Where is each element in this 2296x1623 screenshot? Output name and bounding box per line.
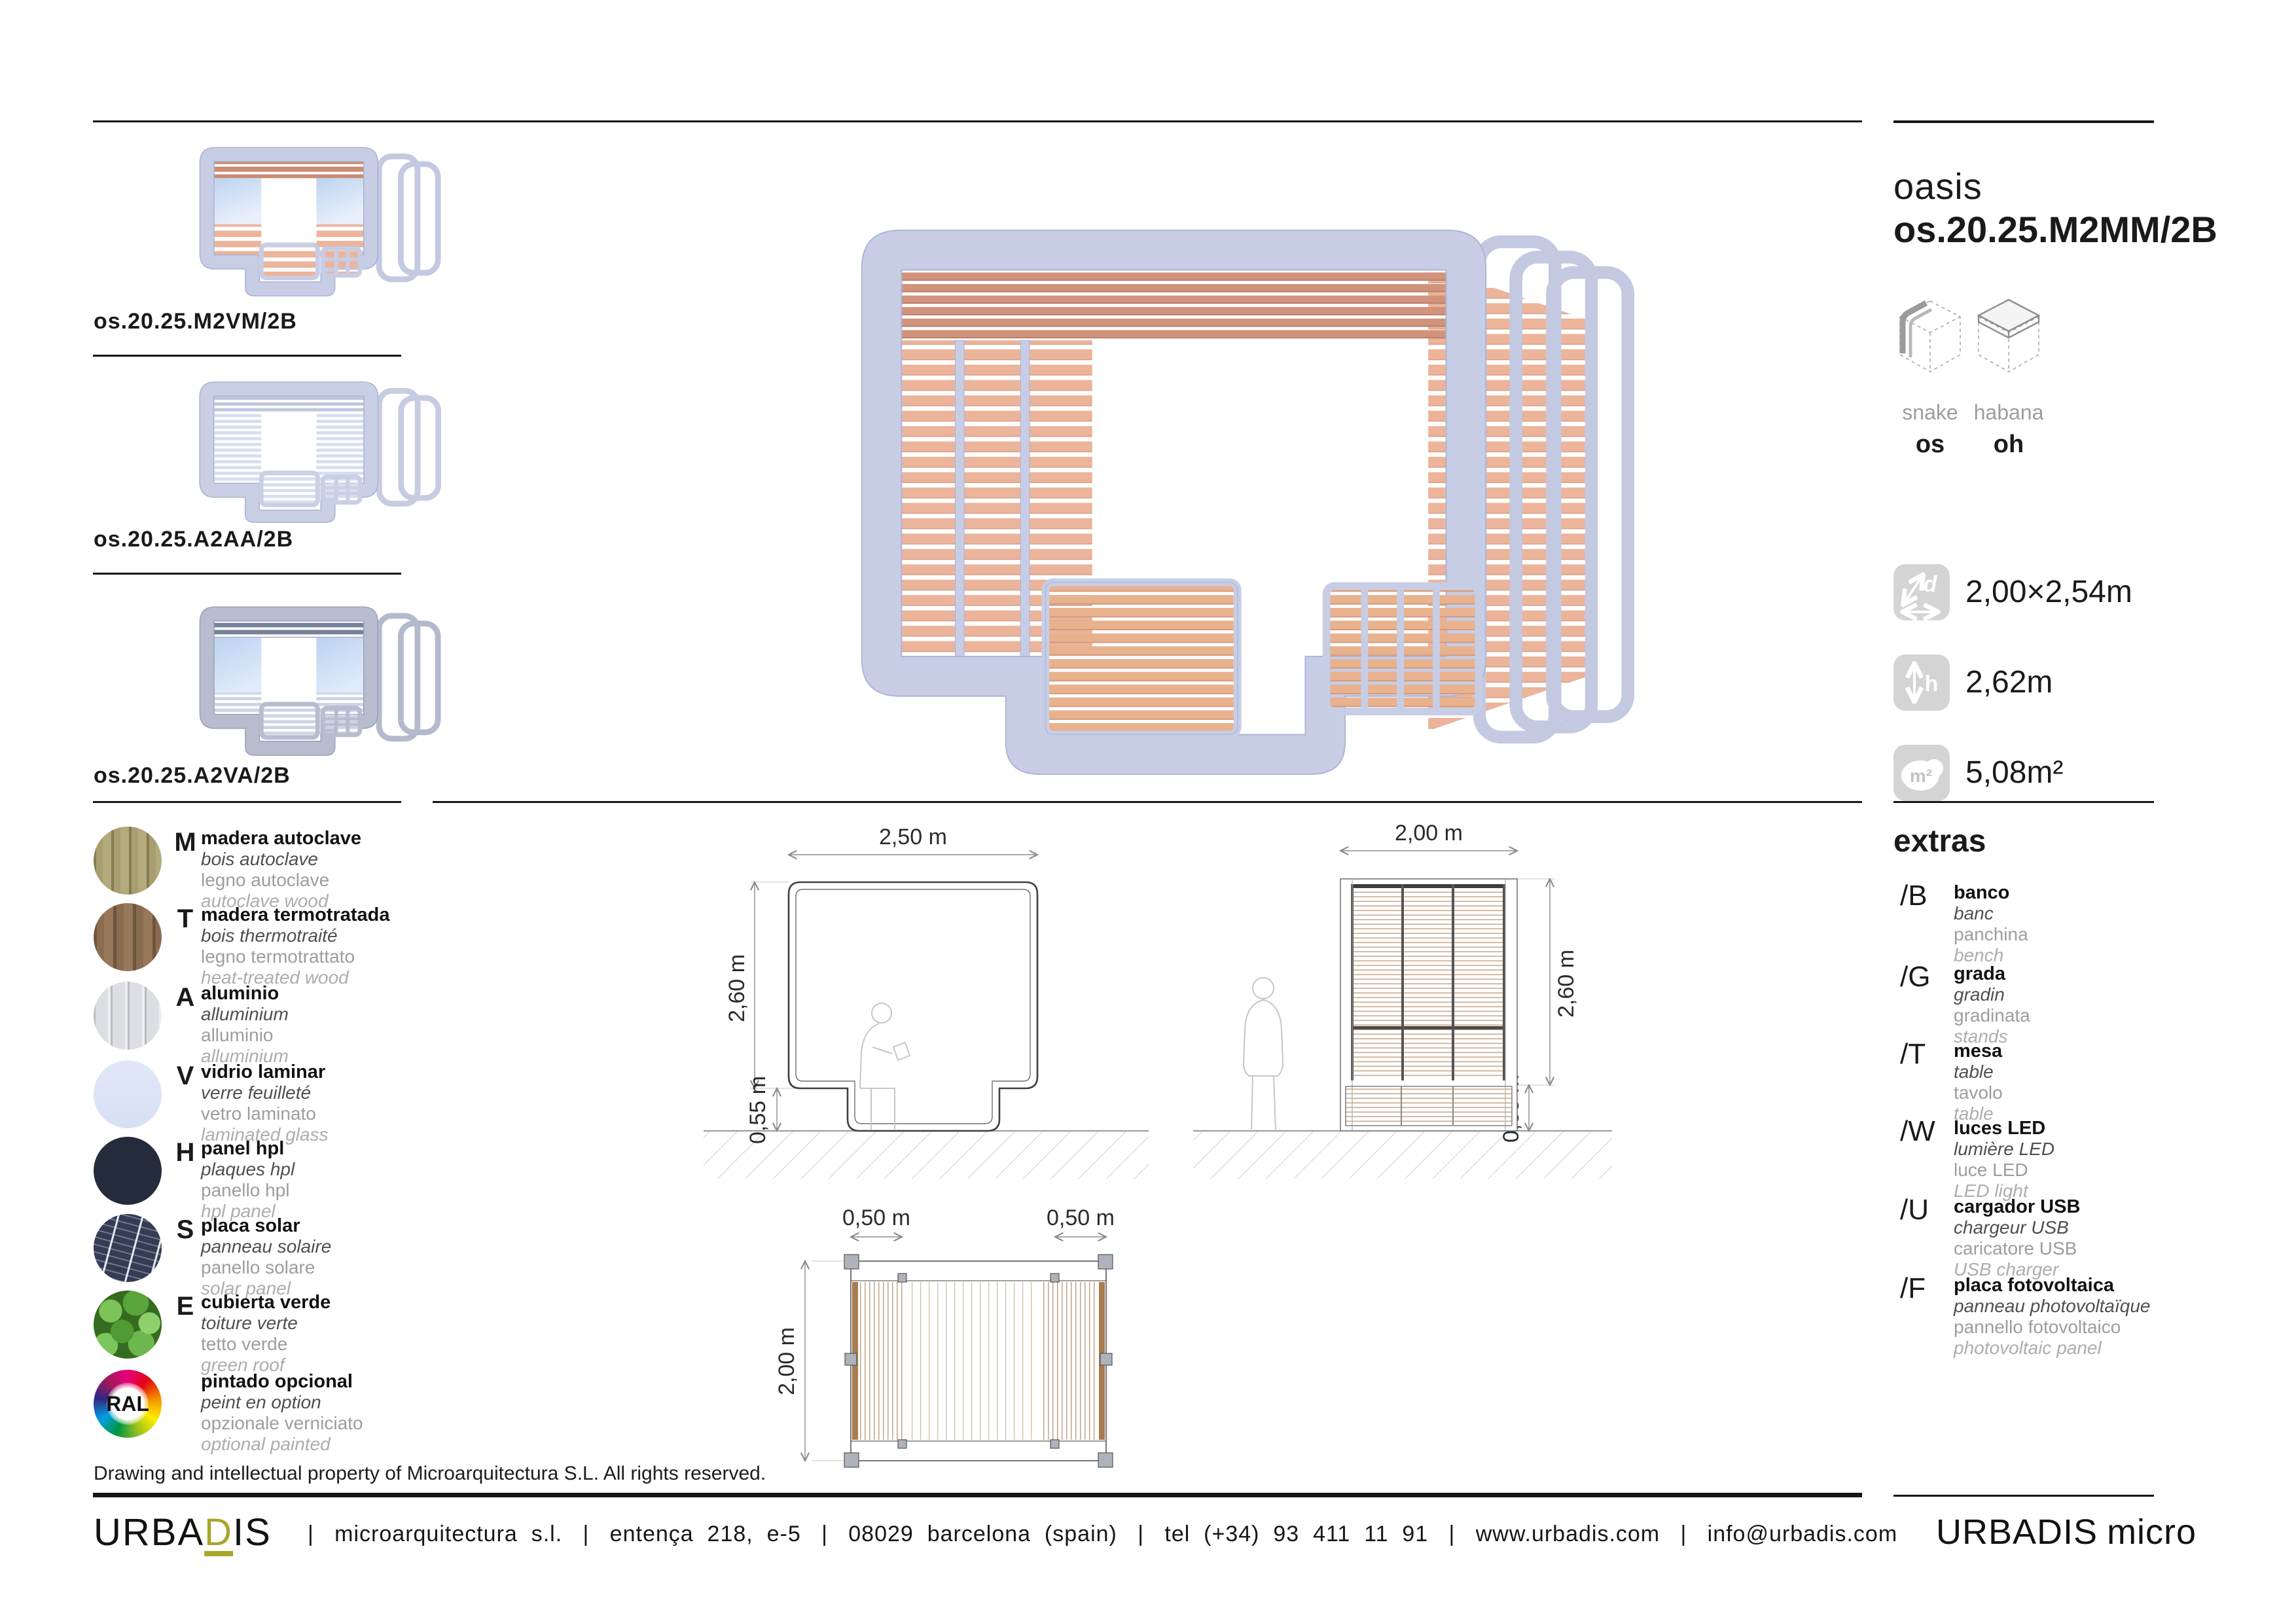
svg-text:m²: m² <box>1910 766 1932 786</box>
brand-accent: D <box>204 1511 233 1554</box>
extra-label-fr: gradin <box>1954 984 2030 1005</box>
extra-label-es: cargador USB <box>1954 1196 2080 1217</box>
footprint-icon: d <box>1893 564 1950 620</box>
material-label-es: vidrio laminar <box>201 1061 329 1082</box>
material-label-fr: plaques hpl <box>201 1159 295 1180</box>
bench-left <box>1045 582 1237 735</box>
spec-area: m² 5,08m² <box>1893 745 1950 801</box>
spec-footprint: d 2,00×2,54m <box>1893 564 1950 620</box>
laminated-glass-swatch <box>94 1060 162 1128</box>
material-letter: S <box>168 1215 203 1245</box>
footer-rule-main <box>93 1493 1862 1497</box>
material-label-es: cubierta verde <box>201 1292 331 1313</box>
model-code-oh: oh <box>1972 431 2045 459</box>
material-label-es: placa solar <box>201 1215 331 1236</box>
dim-front-bench: 0,55 m <box>745 1076 770 1144</box>
variant-3-label: os.20.25.A2VA/2B <box>94 763 291 789</box>
material-row: M madera autoclave bois autoclave legno … <box>94 827 683 899</box>
green-roof-swatch <box>94 1291 162 1359</box>
extra-label-es: banco <box>1954 882 2028 903</box>
extra-code: /B <box>1900 880 1928 912</box>
material-label-es: madera autoclave <box>201 828 361 849</box>
extra-label-es: placa fotovoltaica <box>1954 1275 2151 1296</box>
extra-label-it: tavolo <box>1954 1082 2003 1103</box>
top-rule-main <box>93 120 1862 122</box>
model-icons <box>1893 296 2051 393</box>
model-name-habana: habana <box>1972 401 2045 425</box>
extra-code: /U <box>1900 1194 1929 1226</box>
material-letter: A <box>168 983 203 1012</box>
mid-rule-main <box>433 801 1862 803</box>
model-name-snake: snake <box>1893 401 1967 425</box>
material-label-it: alluminio <box>201 1025 289 1046</box>
top-rule-right <box>1893 120 2154 123</box>
dim-side-height: 2,60 m <box>1554 950 1579 1018</box>
footer-rule-right <box>1893 1495 2154 1497</box>
material-label-fr: verre feuilleté <box>201 1082 329 1103</box>
material-label-it: legno termotrattato <box>201 946 390 967</box>
extra-code: /T <box>1900 1038 1926 1071</box>
aluminium-swatch <box>94 982 162 1050</box>
hero-product-render <box>766 134 1636 781</box>
roof-slats <box>901 270 1446 340</box>
variant-1-rule <box>93 355 401 357</box>
urbadis-logo: URBADIS <box>94 1510 272 1554</box>
solar-panel-swatch <box>94 1214 162 1282</box>
brand-post: IS <box>233 1511 272 1554</box>
material-row: A aluminio alluminium alluminio allumini… <box>94 982 683 1054</box>
urbadis-micro-logo: URBADISmicro <box>1936 1512 2197 1552</box>
material-label-es: madera termotratada <box>201 904 390 925</box>
extra-label-fr: panneau photovoltaïque <box>1954 1296 2151 1317</box>
material-label-it: tetto verde <box>201 1334 331 1355</box>
wood-autoclave-swatch <box>94 827 162 895</box>
material-label-en: optional painted <box>201 1434 363 1455</box>
mid-rule-right <box>1893 801 2154 803</box>
dim-plan-left: 0,50 m <box>842 1205 910 1230</box>
material-letter: T <box>168 904 203 934</box>
material-row: S placa solar panneau solaire panello so… <box>94 1214 683 1286</box>
material-label-es: pintado opcional <box>201 1371 363 1392</box>
material-letter: V <box>168 1061 203 1091</box>
svg-text:h: h <box>1925 671 1939 696</box>
material-row: T madera termotratada bois thermotraité … <box>94 903 683 975</box>
variant-2-label: os.20.25.A2AA/2B <box>94 527 293 552</box>
front-elevation-drawing: 2,50 m 2,60 m 0,55 m <box>691 817 1155 1181</box>
material-row: H panel hpl plaques hpl panello hpl hpl … <box>94 1137 683 1209</box>
material-letter: H <box>168 1138 203 1168</box>
material-label-it: panello hpl <box>201 1180 295 1201</box>
extra-label-fr: banc <box>1954 903 2028 924</box>
material-label-it: vetro laminato <box>201 1103 329 1124</box>
extra-label-fr: lumière LED <box>1954 1139 2054 1160</box>
material-label-es: panel hpl <box>201 1138 295 1159</box>
brand-post: IS <box>2063 1512 2098 1552</box>
brand-pre: URBA <box>1936 1512 2037 1552</box>
extra-label-es: mesa <box>1954 1041 2003 1061</box>
material-letter: M <box>168 828 203 857</box>
extra-label-it: gradinata <box>1954 1005 2030 1026</box>
extras-title: extras <box>1893 823 1986 859</box>
extra-label-it: panchina <box>1954 924 2028 945</box>
extra-label-fr: chargeur USB <box>1954 1217 2080 1238</box>
brand-suffix: micro <box>2107 1512 2197 1552</box>
spec-area-value: 5,08m² <box>1965 745 2063 801</box>
extra-label-es: grada <box>1954 963 2030 984</box>
material-label-fr: toiture verte <box>201 1313 331 1334</box>
brand-accent: D <box>2037 1512 2063 1552</box>
spec-height-value: 2,62m <box>1965 654 2053 711</box>
extra-label-es: luces LED <box>1954 1118 2054 1139</box>
height-icon: h <box>1893 654 1950 711</box>
ral-color-wheel-swatch: RAL <box>94 1370 162 1438</box>
product-code: os.20.25.M2MM/2B <box>1893 208 2217 251</box>
plan-drawing: 0,50 m 0,50 m 2,00 m <box>691 1199 1158 1485</box>
dim-plan-depth: 2,00 m <box>774 1327 799 1395</box>
variant-2-rule <box>93 573 401 575</box>
variant-2-render <box>151 368 446 525</box>
brand-pre: URBA <box>94 1511 204 1554</box>
material-label-fr: panneau solaire <box>201 1236 331 1257</box>
material-letter: E <box>168 1292 203 1321</box>
material-label-fr: bois autoclave <box>201 849 361 870</box>
habana-model-icon <box>1979 300 2039 372</box>
material-label-fr: peint en option <box>201 1392 363 1413</box>
dim-side-width: 2,00 m <box>1395 821 1463 846</box>
variant-3-rule <box>93 801 401 803</box>
svg-text:d: d <box>1924 572 1938 597</box>
hpl-panel-swatch <box>94 1137 162 1205</box>
spec-footprint-value: 2,00×2,54m <box>1965 564 2132 620</box>
dim-plan-right: 0,50 m <box>1047 1205 1115 1230</box>
dim-front-width: 2,50 m <box>879 825 947 849</box>
material-row: RAL pintado opcional peint en option opz… <box>94 1370 683 1442</box>
variant-1-label: os.20.25.M2VM/2B <box>94 309 297 334</box>
extra-label-fr: table <box>1954 1061 2003 1082</box>
extra-label-it: pannello fotovoltaico <box>1954 1317 2151 1338</box>
extra-label-it: luce LED <box>1954 1160 2054 1181</box>
material-label-fr: alluminium <box>201 1004 289 1025</box>
snake-model-icon <box>1900 301 1960 372</box>
extra-label-it: caricatore USB <box>1954 1238 2080 1259</box>
material-label-it: panello solare <box>201 1257 331 1278</box>
dim-front-height: 2,60 m <box>725 954 749 1022</box>
ral-label: RAL <box>107 1383 149 1425</box>
material-label-fr: bois thermotraité <box>201 925 390 946</box>
extra-code: /W <box>1900 1115 1935 1148</box>
extra-label-en: photovoltaic panel <box>1954 1338 2151 1359</box>
spec-height: h 2,62m <box>1893 654 1950 711</box>
wood-heat-treated-swatch <box>94 903 162 971</box>
material-label-es: aluminio <box>201 983 289 1004</box>
material-label-it: opzionale verniciato <box>201 1413 363 1434</box>
material-label-it: legno autoclave <box>201 870 361 891</box>
area-icon: m² <box>1893 745 1950 801</box>
side-elevation-drawing: 2,00 m 2,60 m 0,55 m <box>1183 817 1620 1181</box>
variant-1-render <box>151 128 446 300</box>
footer-address: | microarquitectura s.l. | entença 218, … <box>308 1522 1897 1547</box>
model-code-os: os <box>1893 431 1967 459</box>
product-family: oasis <box>1893 165 1982 207</box>
material-row: E cubierta verde toiture verte tetto ver… <box>94 1291 683 1363</box>
variant-3-render <box>151 588 446 759</box>
extra-code: /G <box>1900 961 1930 993</box>
standing-figure <box>1244 978 1283 1130</box>
extra-code: /F <box>1900 1272 1926 1305</box>
copyright-notice: Drawing and intellectual property of Mic… <box>94 1463 766 1485</box>
material-row: V vidrio laminar verre feuilleté vetro l… <box>94 1060 683 1132</box>
